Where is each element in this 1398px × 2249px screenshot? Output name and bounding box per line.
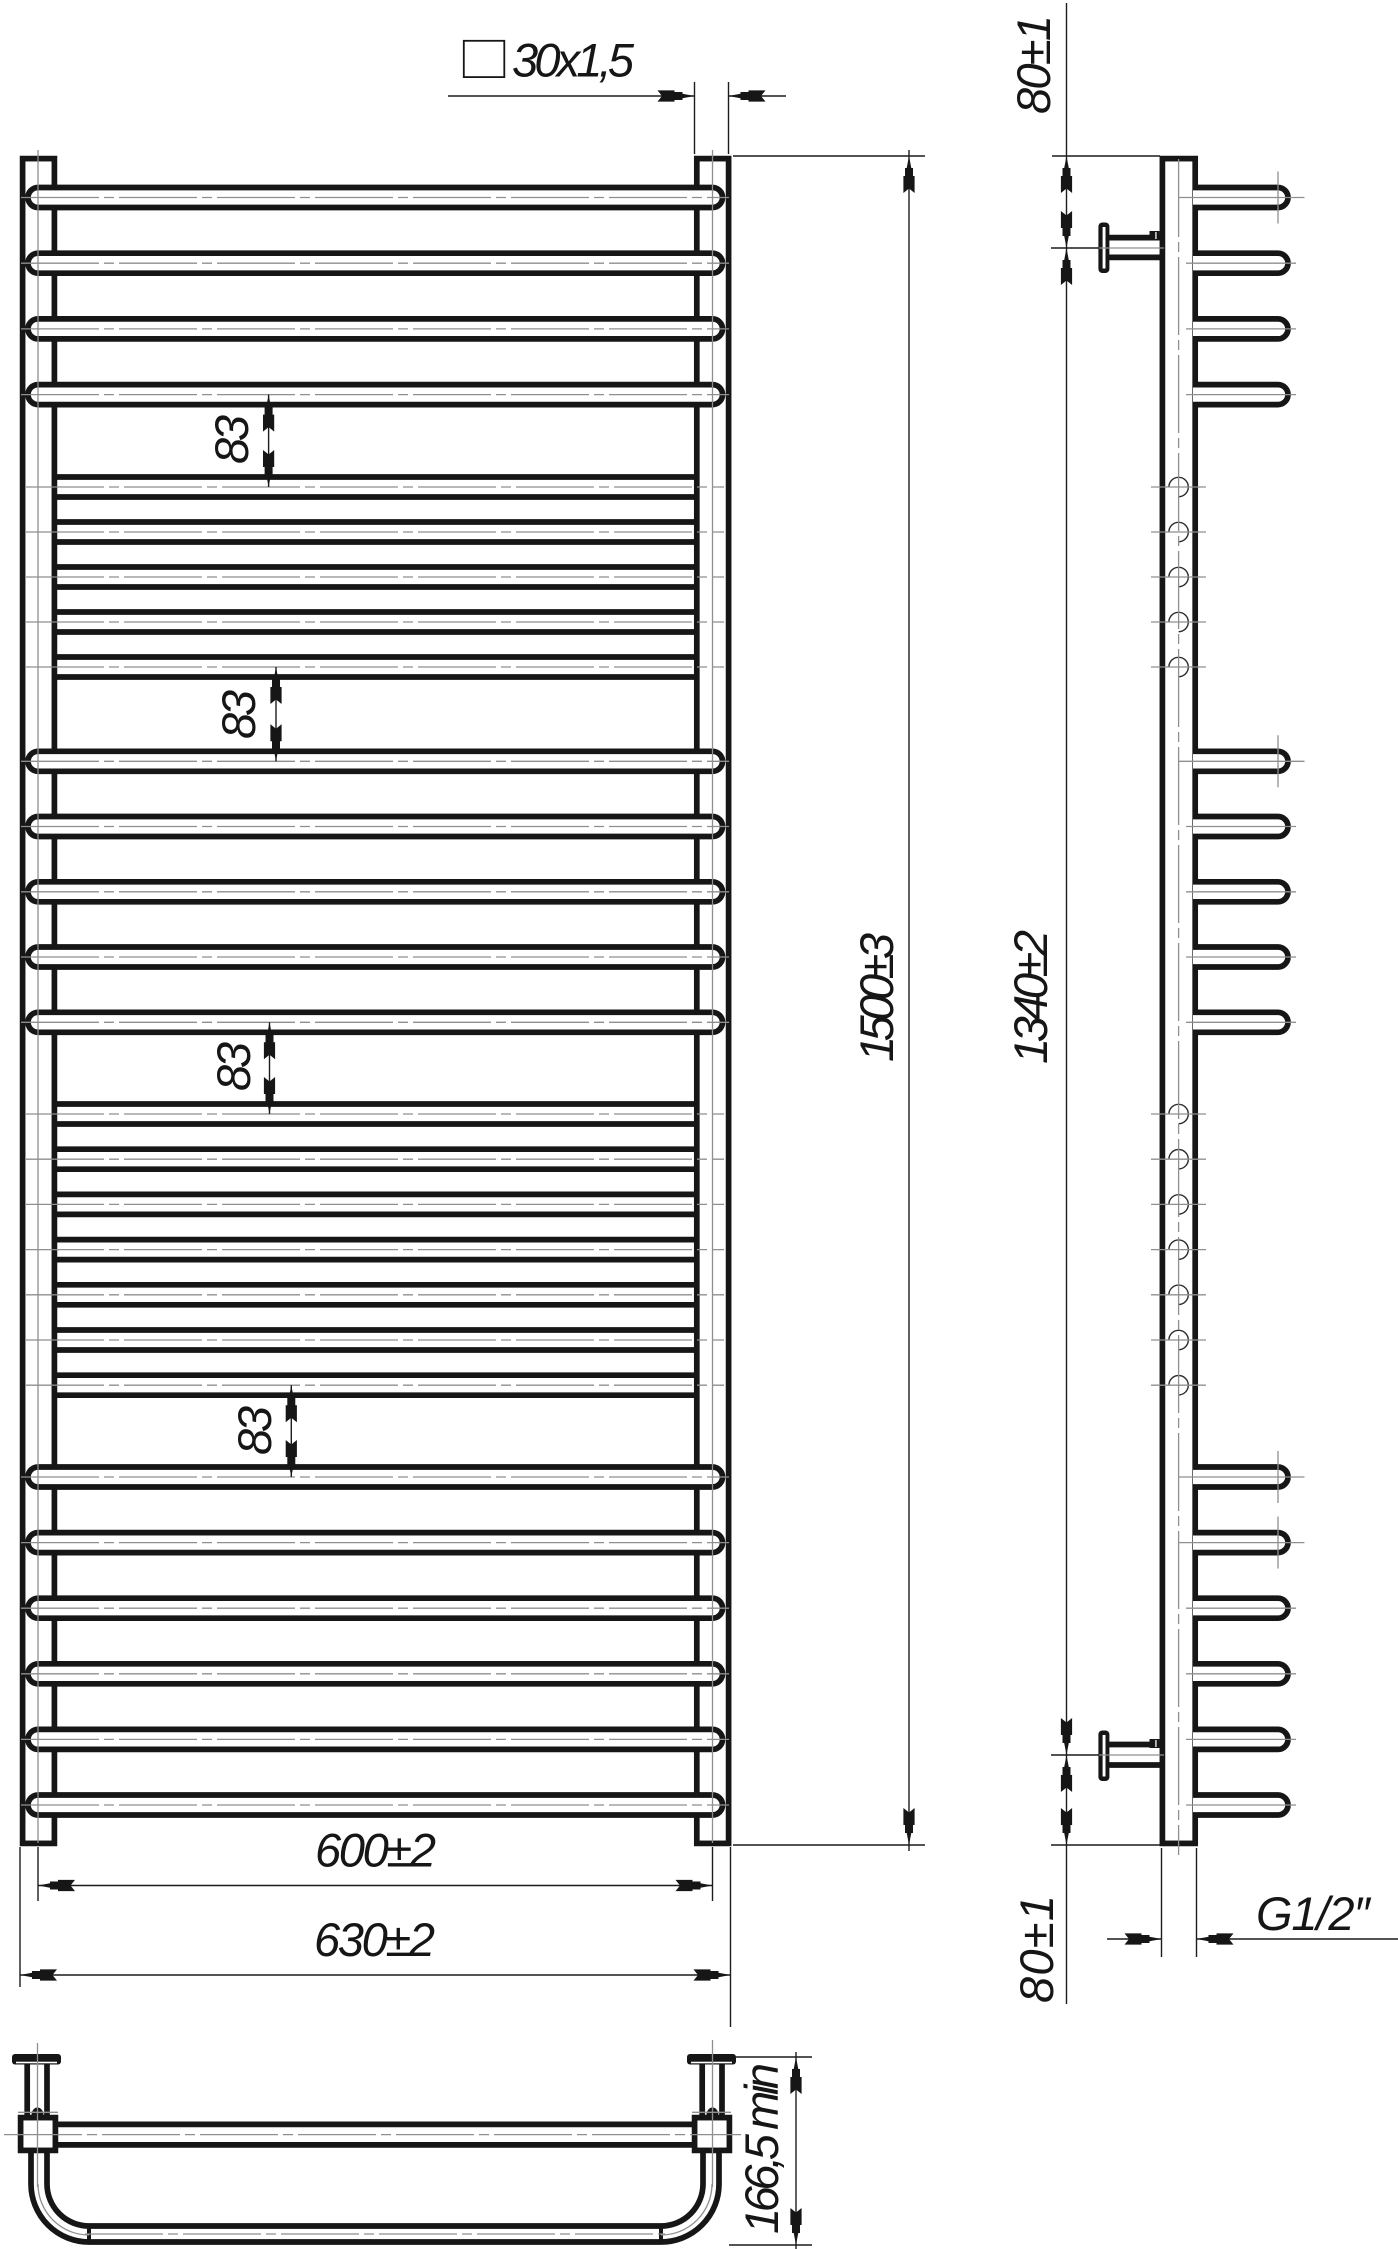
svg-text:83: 83 bbox=[207, 1042, 260, 1091]
svg-text:80±1: 80±1 bbox=[1010, 1895, 1063, 2003]
svg-text:166,5 min: 166,5 min bbox=[735, 2063, 788, 2234]
svg-text:83: 83 bbox=[205, 415, 258, 464]
svg-text:630±2: 630±2 bbox=[314, 1913, 435, 1966]
svg-text:1340±2: 1340±2 bbox=[1004, 930, 1057, 1064]
svg-text:83: 83 bbox=[228, 1406, 281, 1455]
svg-text:600±2: 600±2 bbox=[315, 1824, 436, 1877]
svg-text:30x1,5: 30x1,5 bbox=[512, 34, 635, 87]
svg-text:80±1: 80±1 bbox=[1007, 15, 1060, 114]
svg-text:G1/2″: G1/2″ bbox=[1256, 1887, 1371, 1940]
svg-text:83: 83 bbox=[212, 690, 265, 739]
svg-text:1500±3: 1500±3 bbox=[850, 933, 903, 1062]
